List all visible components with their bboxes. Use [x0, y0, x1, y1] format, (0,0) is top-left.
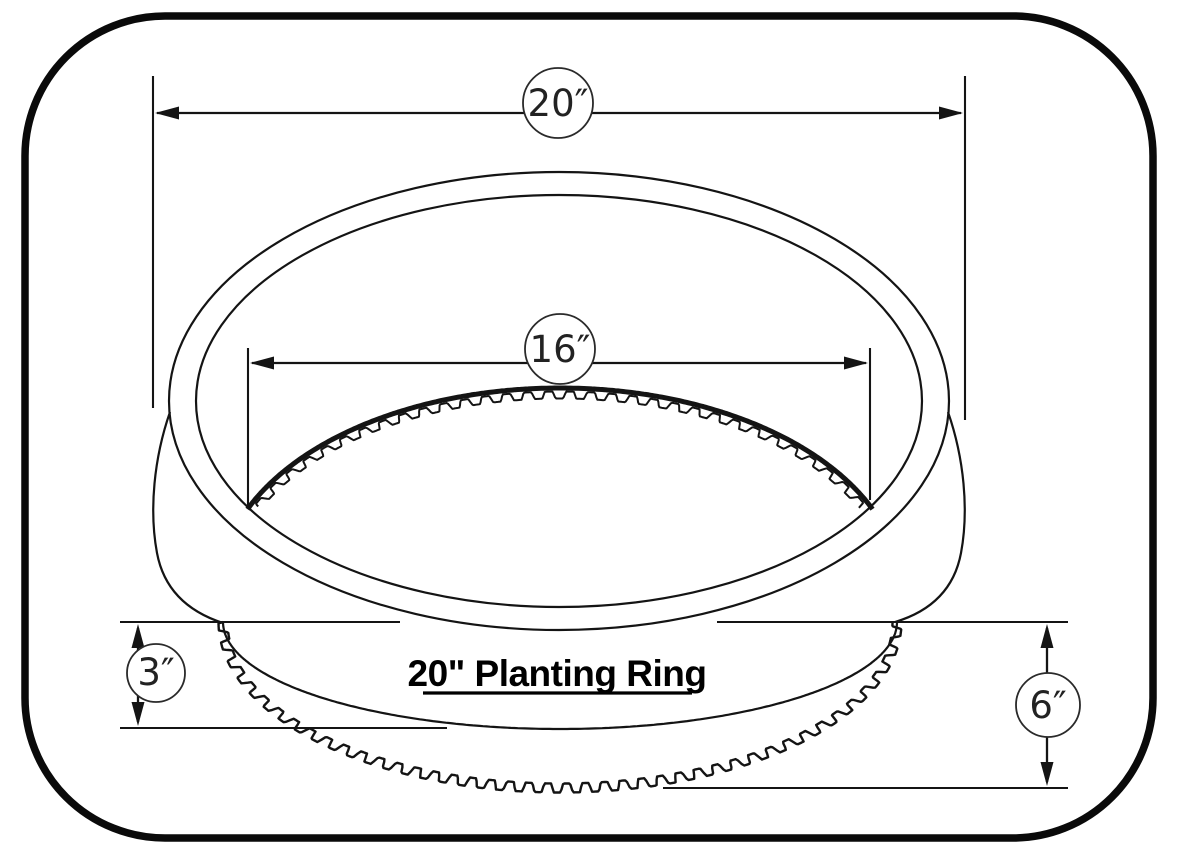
dimension-total-height: 6″ — [663, 622, 1080, 788]
arrowhead-right-icon — [939, 107, 963, 120]
total-height-label: 6″ — [1029, 684, 1066, 727]
arrowhead-right-icon — [844, 357, 868, 370]
outer-frame-border — [25, 16, 1153, 838]
arrowhead-left-icon — [250, 357, 274, 370]
rim-outer-ellipse — [169, 172, 949, 630]
dimension-inner-diameter: 16″ — [248, 314, 870, 505]
inner-diameter-label: 16″ — [530, 328, 591, 371]
diagram-title: 20" Planting Ring — [408, 653, 707, 694]
bottom-serrated-edge — [219, 622, 902, 793]
rim-inner-ellipse — [196, 195, 922, 607]
arrowhead-left-icon — [155, 107, 179, 120]
planting-ring-diagram: 20″ 16″ 3″ 6″ 20" Planting Ring — [0, 0, 1190, 853]
arrowhead-down-icon — [1041, 762, 1054, 786]
arrowhead-up-icon — [1041, 624, 1054, 648]
generated-ring-arcs — [219, 388, 902, 793]
arrowhead-down-icon — [132, 702, 145, 726]
title-block: 20" Planting Ring — [408, 653, 707, 694]
outer-diameter-label: 20″ — [528, 82, 589, 125]
body-right-silhouette — [895, 412, 965, 622]
arrowhead-up-icon — [132, 624, 145, 648]
body-left-silhouette — [153, 412, 223, 623]
upper-height-label: 3″ — [137, 651, 174, 694]
inner-opening-serration — [256, 392, 863, 508]
inner-opening-bold-arc — [248, 388, 873, 509]
planting-ring-drawing — [153, 172, 965, 793]
